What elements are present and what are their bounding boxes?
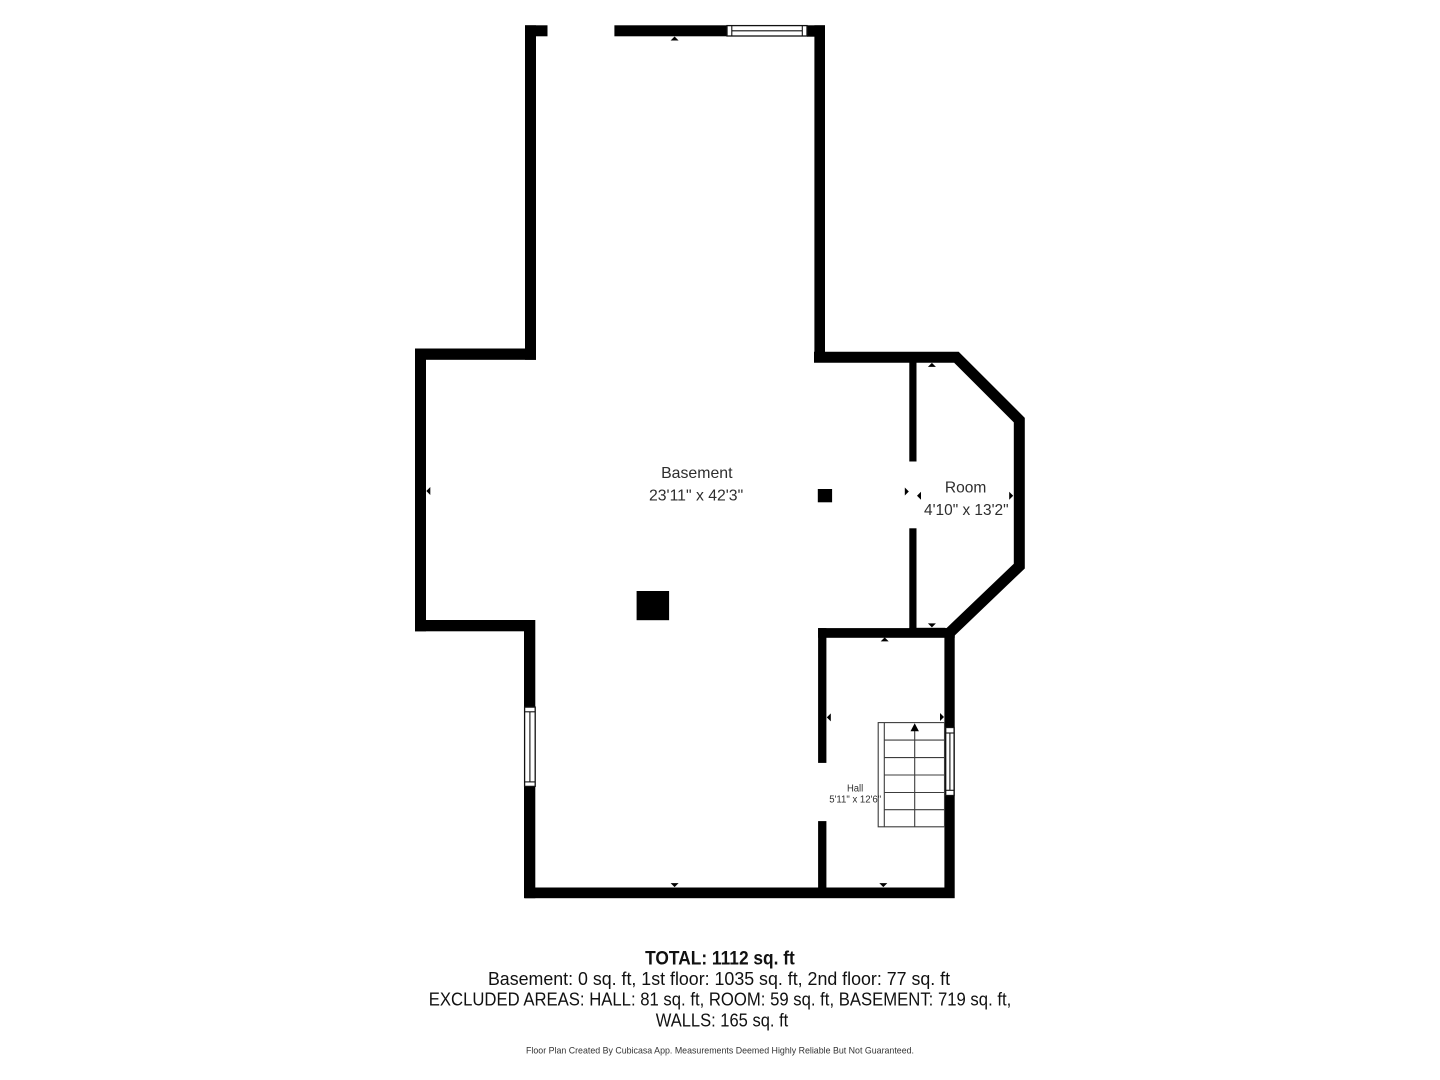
svg-text:Basement: 0 sq. ft, 1st floor:: Basement: 0 sq. ft, 1st floor: 1035 sq. … [488,968,950,989]
svg-text:5'11" x 12'6": 5'11" x 12'6" [829,795,881,806]
svg-text:WALLS: 165 sq. ft: WALLS: 165 sq. ft [656,1009,789,1030]
svg-text:Floor Plan Created By Cubicasa: Floor Plan Created By Cubicasa App. Meas… [526,1045,914,1056]
svg-text:4'10" x 13'2": 4'10" x 13'2" [924,502,1009,519]
svg-text:Room: Room [945,480,987,497]
svg-text:Basement: Basement [661,465,733,482]
svg-text:Hall: Hall [847,784,863,795]
svg-text:23'11" x 42'3": 23'11" x 42'3" [649,488,743,505]
svg-text:TOTAL: 1112 sq. ft: TOTAL: 1112 sq. ft [645,948,795,969]
svg-text:EXCLUDED AREAS: HALL: 81 sq. f: EXCLUDED AREAS: HALL: 81 sq. ft, ROOM: 5… [429,989,1012,1010]
